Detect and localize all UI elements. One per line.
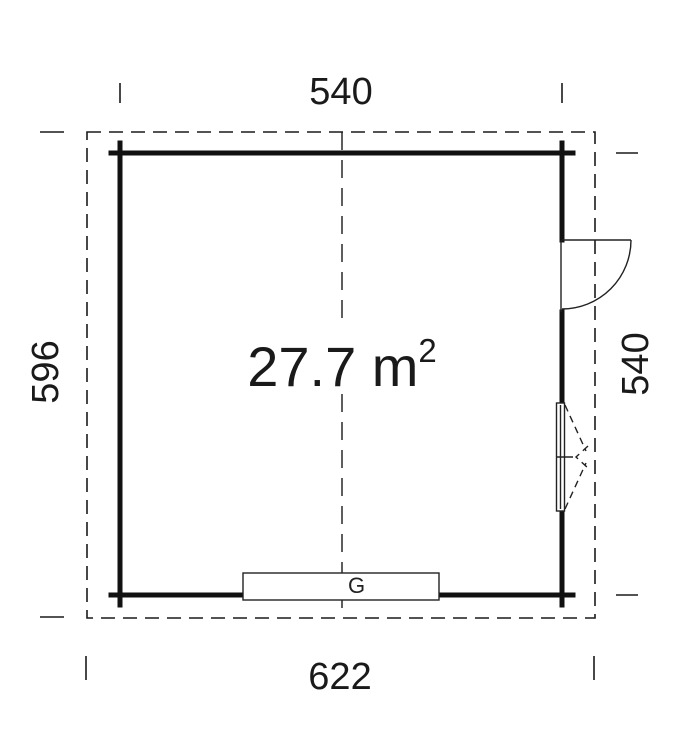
area-value: 27.7 m xyxy=(247,335,418,398)
area-label: 27.7 m2 xyxy=(247,332,437,398)
area-superscript: 2 xyxy=(418,332,436,369)
dimension-right-label: 540 xyxy=(615,332,657,395)
door xyxy=(561,240,631,312)
door-swing-arc xyxy=(562,240,631,309)
window-opening-arrow xyxy=(576,446,588,468)
dimension-bottom-label: 622 xyxy=(308,656,371,698)
gate-symbol: G xyxy=(348,573,365,598)
floor-plan-canvas: G 540 622 596 540 27.7 m2 xyxy=(0,0,680,750)
window-opening-dash-upper xyxy=(565,405,586,451)
floor-plan-drawing: G 540 622 596 540 27.7 m2 xyxy=(0,0,680,750)
gate: G xyxy=(243,573,439,600)
window xyxy=(556,403,588,511)
dimension-top-label: 540 xyxy=(309,71,372,113)
gate-rect xyxy=(243,573,439,600)
window-opening-dash-lower xyxy=(565,463,586,509)
dimension-left-label: 596 xyxy=(25,340,67,403)
